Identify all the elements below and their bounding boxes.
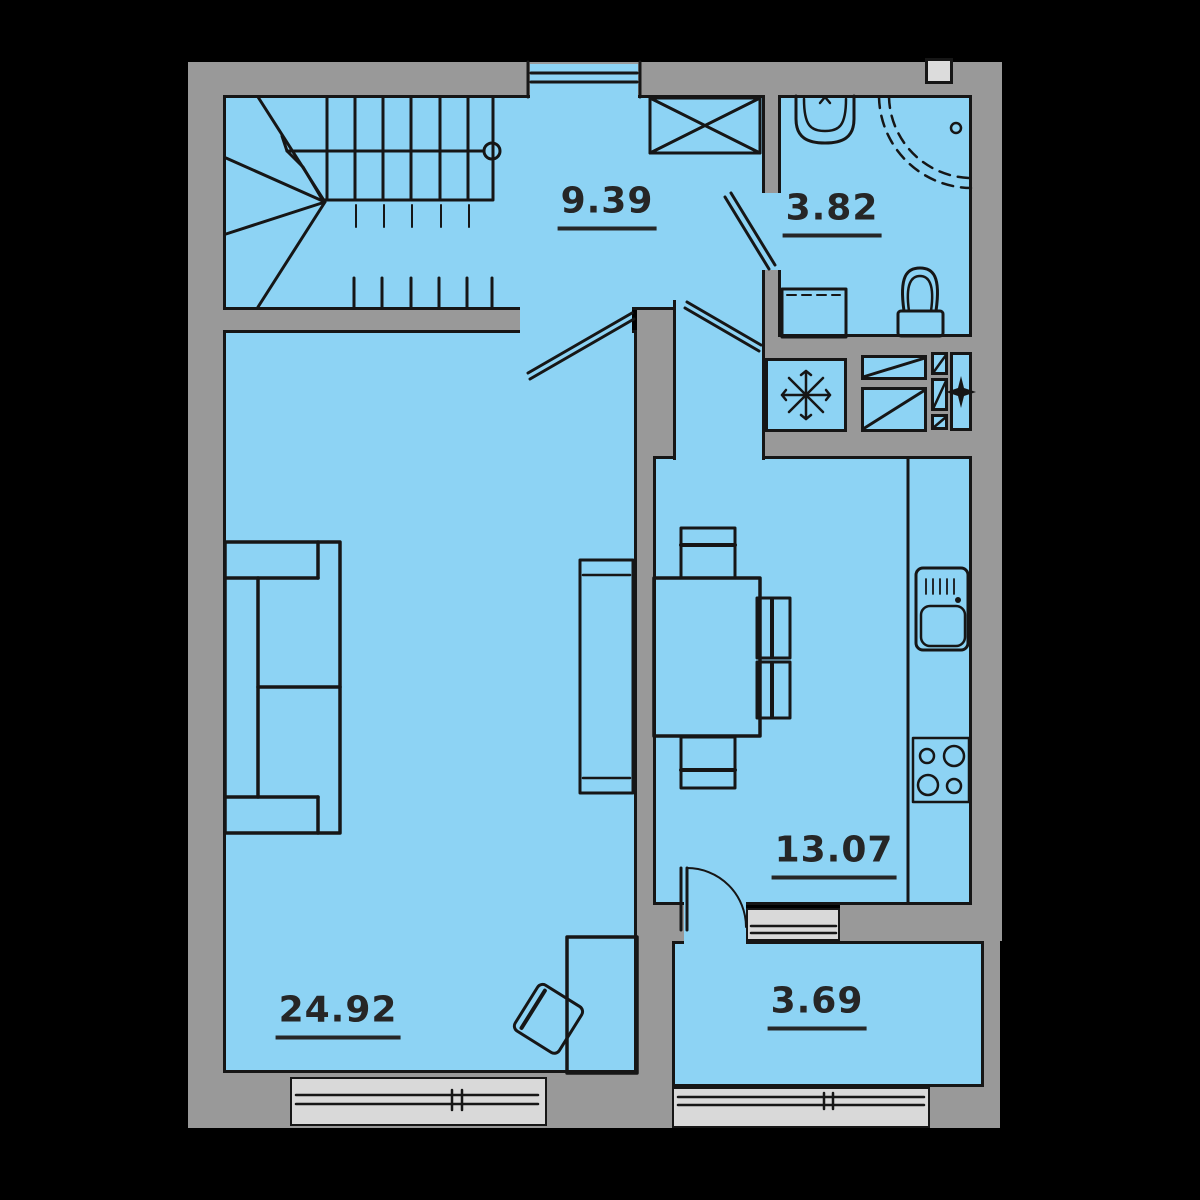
wall-right	[972, 62, 1002, 941]
area-label-hallway: 9.39	[558, 184, 657, 231]
wall-kitchen-bottom	[840, 905, 984, 941]
window-kitchen-balcony	[746, 908, 840, 941]
opening-bathroom-door	[760, 193, 783, 270]
vent-shaft-e	[931, 414, 948, 430]
area-label-living: 24.92	[276, 993, 401, 1040]
area-label-kitchen: 13.07	[772, 833, 897, 880]
vent-shaft-d	[931, 378, 948, 411]
floor-living-room	[223, 330, 637, 1073]
floor-hallway-stairs	[223, 95, 765, 310]
opening-balcony-door	[684, 902, 746, 944]
vent-shaft-a	[861, 355, 927, 380]
wall-under-stairs	[188, 307, 520, 330]
floor-kitchen-passage	[673, 300, 765, 460]
wall-balcony-corner	[930, 1085, 1000, 1128]
opening-living-door	[520, 300, 632, 333]
vent-strip	[950, 352, 972, 431]
window-living-room	[290, 1077, 547, 1126]
wall-bathroom-lower	[765, 270, 778, 337]
wall-center-post	[637, 310, 673, 456]
floor-plan: 9.39 3.82 13.07 24.92 3.69	[0, 0, 1200, 1200]
opening-entrance	[530, 64, 638, 100]
wall-balcony-right	[984, 941, 1000, 1087]
vent-shaft-c	[931, 352, 948, 375]
wall-left	[188, 62, 223, 1128]
snowflake-unit-box	[765, 358, 847, 432]
vent-shaft-b	[861, 387, 927, 432]
wall-column-marker	[925, 58, 953, 84]
area-label-bathroom: 3.82	[783, 191, 882, 238]
area-label-balcony: 3.69	[768, 984, 867, 1031]
wall-bathroom-upper	[765, 95, 778, 193]
wall-center-thin	[637, 456, 653, 800]
window-balcony	[672, 1087, 930, 1128]
wall-balcony-jamb	[672, 905, 684, 941]
